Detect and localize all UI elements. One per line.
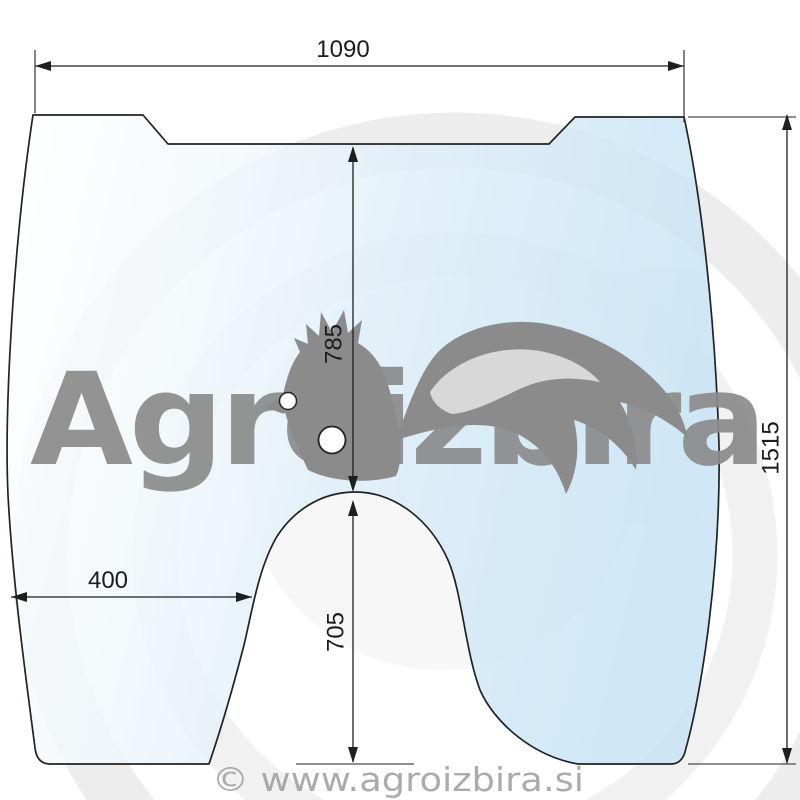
dimension-value: 785 [321, 324, 348, 364]
dimension-value: 705 [323, 612, 350, 652]
dimension-value: 1090 [316, 36, 369, 63]
product-image-canvas: Agroizbira © www.agroizbira.si 1090 785 [0, 0, 800, 800]
mounting-hole-large [319, 427, 346, 454]
dimension-value: 1515 [758, 421, 785, 474]
glass-dimension-diagram: Agroizbira © www.agroizbira.si 1090 785 [0, 0, 800, 800]
copyright-watermark: © www.agroizbira.si [212, 760, 584, 799]
mounting-hole-small [280, 393, 297, 410]
dimension-value: 400 [88, 567, 128, 594]
